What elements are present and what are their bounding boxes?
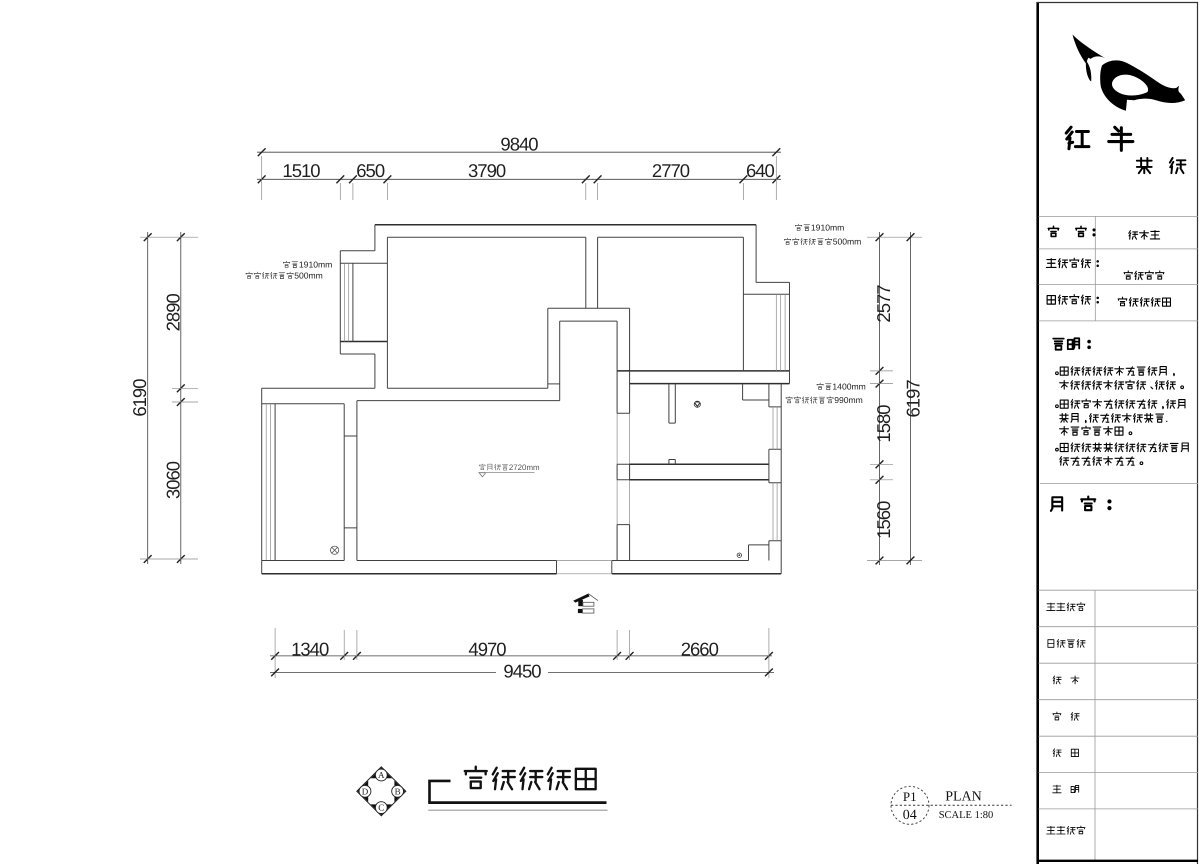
svg-text:1340: 1340: [291, 638, 329, 659]
svg-text:3790: 3790: [468, 160, 506, 181]
svg-text:6190: 6190: [129, 379, 150, 417]
svg-text:04: 04: [903, 808, 917, 823]
svg-text:1400mm: 1400mm: [832, 382, 865, 392]
svg-text:1510: 1510: [282, 160, 320, 181]
svg-text:B: B: [395, 786, 401, 796]
svg-text:650: 650: [356, 160, 385, 181]
svg-text:D: D: [362, 786, 369, 796]
svg-text:2577: 2577: [873, 285, 894, 323]
svg-text:2660: 2660: [681, 638, 719, 659]
svg-text:9450: 9450: [503, 661, 541, 682]
svg-text:500mm: 500mm: [294, 271, 323, 281]
svg-text:6197: 6197: [903, 380, 924, 418]
svg-text:1580: 1580: [873, 405, 894, 443]
svg-text:500mm: 500mm: [833, 237, 862, 247]
svg-text:A: A: [378, 770, 385, 780]
svg-text:9840: 9840: [500, 133, 538, 154]
svg-text:1910mm: 1910mm: [299, 260, 332, 270]
svg-text:3060: 3060: [163, 461, 184, 499]
svg-text:C: C: [378, 803, 384, 813]
svg-text:SCALE 1:80: SCALE 1:80: [939, 810, 994, 821]
svg-text:1560: 1560: [873, 501, 894, 539]
svg-text:640: 640: [746, 160, 775, 181]
svg-text:2890: 2890: [163, 294, 184, 332]
svg-text:1910mm: 1910mm: [811, 223, 844, 233]
svg-text:PLAN: PLAN: [945, 790, 982, 805]
svg-text:4970: 4970: [468, 638, 506, 659]
svg-text:2770: 2770: [652, 160, 690, 181]
svg-text:.: .: [1165, 413, 1168, 425]
svg-text:990mm: 990mm: [834, 395, 863, 405]
svg-text:2720mm: 2720mm: [509, 463, 540, 472]
svg-text:P1: P1: [903, 789, 917, 804]
